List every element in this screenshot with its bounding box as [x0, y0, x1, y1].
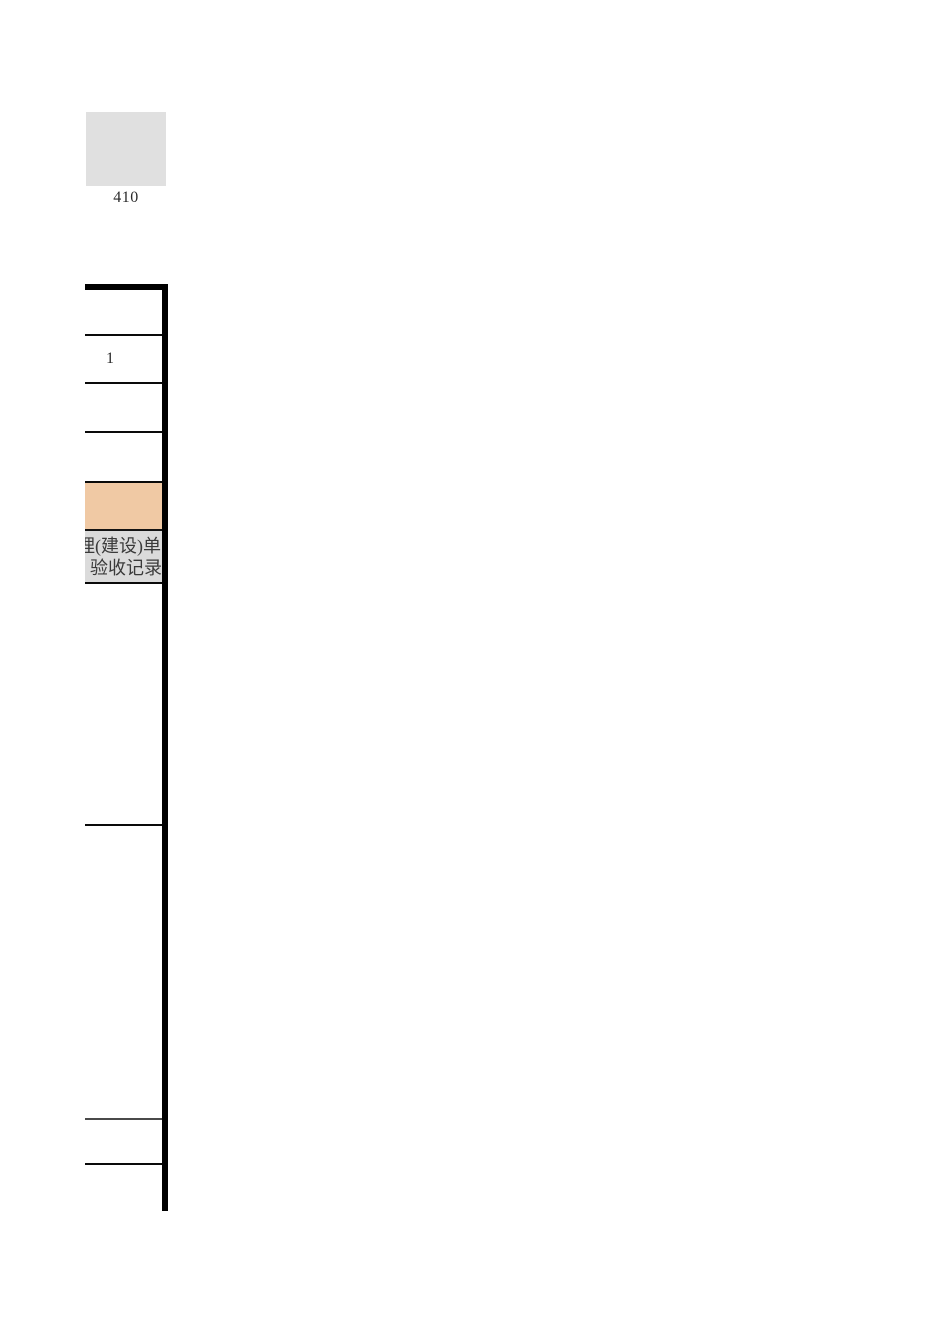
table-row: [85, 290, 162, 336]
table-row: 1: [85, 336, 162, 384]
table-row: [85, 1165, 162, 1211]
table-row: [85, 826, 162, 1120]
row-number-cell: 1: [105, 336, 115, 382]
table-row: [85, 584, 162, 826]
header-text-line: 理(建设)单: [85, 535, 162, 557]
table-row-highlighted: [85, 483, 162, 531]
figure-caption: 410: [86, 189, 166, 207]
page: 410 1 理(建设)单 验收记录: [0, 0, 950, 1344]
image-placeholder: [86, 112, 166, 186]
acceptance-table-fragment: 1 理(建设)单 验收记录: [85, 284, 168, 1211]
table-row: [85, 384, 162, 433]
table-row: [85, 433, 162, 483]
table-row: [85, 1120, 162, 1165]
table-header-cell-supervision-acceptance: 理(建设)单 验收记录: [85, 531, 162, 584]
header-text-line: 验收记录: [90, 557, 162, 579]
